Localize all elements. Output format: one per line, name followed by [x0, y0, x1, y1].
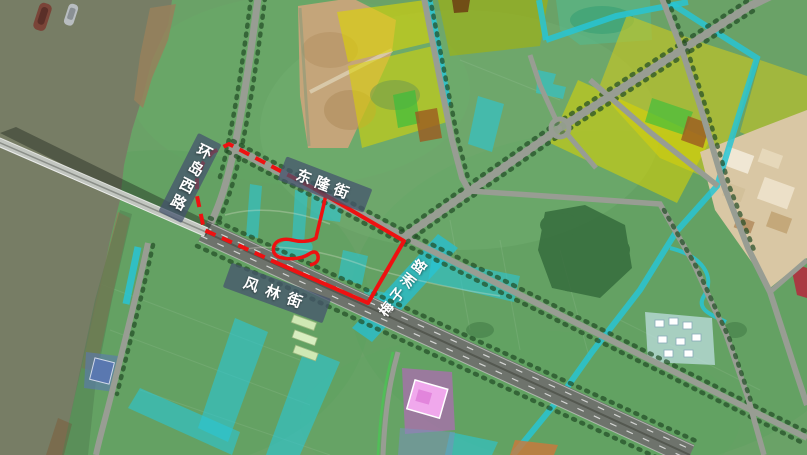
satellite-map-canvas[interactable]: 环岛西路 东隆街 风林街 梅子洲路 — [0, 0, 807, 455]
map-graphics — [0, 0, 807, 455]
roundabout — [551, 119, 569, 137]
